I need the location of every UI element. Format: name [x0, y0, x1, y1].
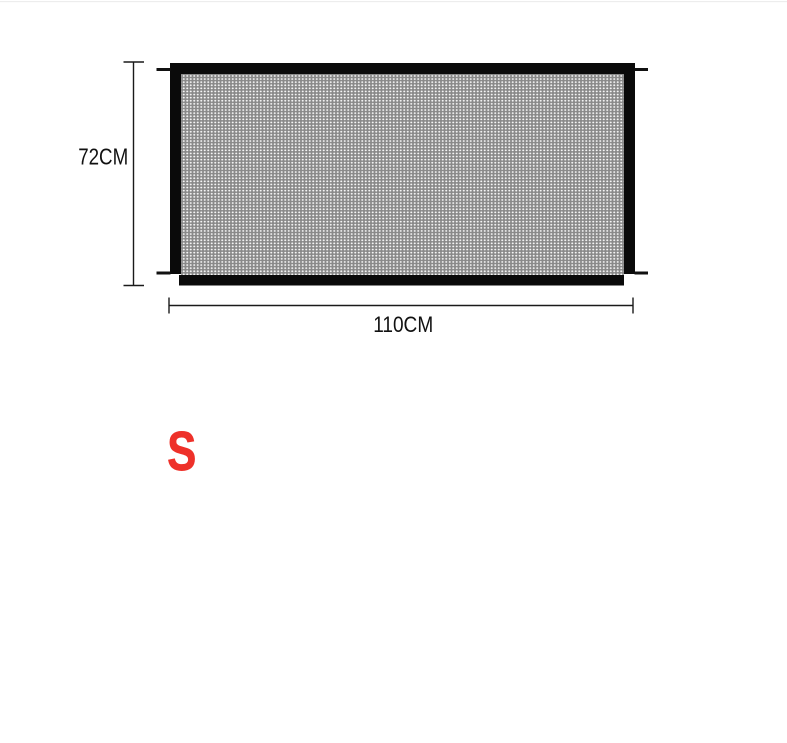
svg-text:72CM: 72CM — [78, 143, 128, 169]
svg-text:110CM: 110CM — [373, 312, 433, 337]
svg-text:S: S — [167, 420, 196, 482]
